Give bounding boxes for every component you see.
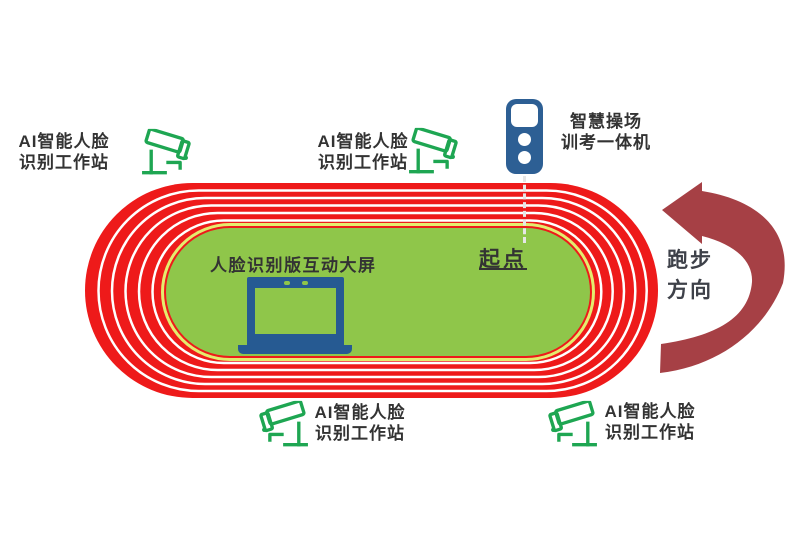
laptop-camera-dot — [302, 281, 308, 285]
terminal-label-line: 训考一体机 — [549, 132, 663, 153]
running-direction-label: 跑步 方向 — [667, 246, 713, 306]
station-label-bottom-middle: AI智能人脸 识别工作站 — [308, 402, 412, 444]
station-label-line: AI智能人脸 — [310, 131, 416, 152]
station-label-line: 识别工作站 — [8, 152, 120, 173]
cctv-camera-icon — [140, 127, 196, 183]
running-direction-line: 方向 — [667, 276, 713, 306]
smart-track-terminal-icon — [506, 99, 543, 174]
interactive-screen-icon — [247, 277, 344, 347]
laptop-camera-dot — [284, 281, 290, 285]
station-label-line: AI智能人脸 — [308, 402, 412, 423]
station-label-line: 识别工作站 — [308, 423, 412, 444]
station-label-bottom-right: AI智能人脸 识别工作站 — [597, 401, 703, 443]
smart-playground-diagram: AI智能人脸 识别工作站 AI智能人脸 识别工作站 智慧操场 训考一体机 起点 … — [0, 0, 800, 539]
terminal-label-line: 智慧操场 — [549, 111, 663, 132]
laptop-display — [255, 288, 336, 334]
cctv-camera-icon — [543, 399, 599, 455]
station-label-top-middle: AI智能人脸 识别工作站 — [310, 131, 416, 173]
station-label-line: AI智能人脸 — [597, 401, 703, 422]
station-label-top-left: AI智能人脸 识别工作站 — [8, 131, 120, 173]
running-direction-line: 跑步 — [667, 246, 713, 276]
station-label-line: 识别工作站 — [310, 152, 416, 173]
terminal-dot — [518, 133, 531, 146]
station-label-line: AI智能人脸 — [8, 131, 120, 152]
terminal-label: 智慧操场 训考一体机 — [549, 111, 663, 153]
laptop-base — [238, 345, 352, 354]
start-point-label: 起点 — [479, 243, 527, 273]
start-line-dashed-connector — [523, 176, 526, 243]
cctv-camera-icon — [407, 126, 463, 182]
terminal-screen — [511, 104, 538, 127]
terminal-dot — [518, 151, 531, 164]
interactive-screen-label: 人脸识别版互动大屏 — [210, 251, 377, 276]
station-label-line: 识别工作站 — [597, 422, 703, 443]
cctv-camera-icon — [254, 399, 310, 455]
